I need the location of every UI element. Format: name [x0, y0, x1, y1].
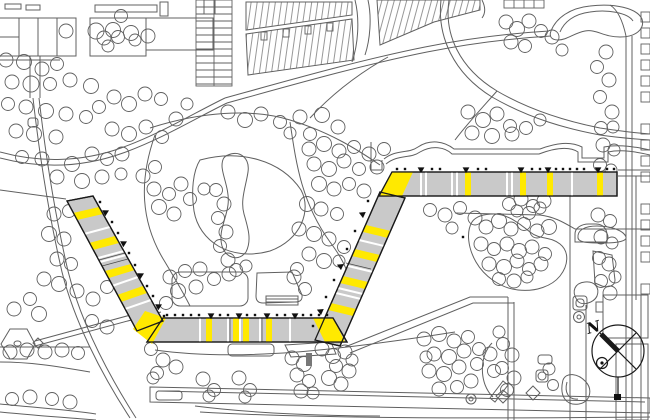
- tree-symbol: [488, 243, 501, 256]
- tree-symbol: [193, 262, 207, 276]
- tree-symbol: [5, 75, 19, 89]
- entrance-marker: [485, 168, 487, 170]
- tree-symbol: [424, 204, 437, 217]
- tree-symbol: [189, 280, 203, 294]
- tree-symbol: [602, 73, 616, 87]
- tree-symbol: [303, 375, 316, 388]
- utility-box: [306, 353, 312, 366]
- tree-symbol: [70, 284, 84, 298]
- tree-symbol: [327, 182, 341, 196]
- entrance-marker: [336, 262, 344, 271]
- tree-symbol: [7, 302, 21, 316]
- building-highlight: [206, 318, 212, 342]
- tree-symbol: [184, 193, 197, 206]
- tree-symbol: [422, 364, 436, 378]
- tree-symbol: [124, 26, 139, 41]
- tree-symbol: [591, 61, 604, 74]
- road: [365, 0, 370, 55]
- tree-symbol: [80, 111, 93, 124]
- entrance-marker: [569, 168, 571, 170]
- tree-symbol: [139, 120, 153, 134]
- entrance-marker: [163, 315, 165, 317]
- entrance-marker: [326, 314, 328, 316]
- neighbor-complex-detail: [26, 5, 40, 10]
- tree-symbol: [605, 105, 619, 119]
- tree-symbol: [464, 374, 478, 388]
- tree-symbol: [451, 381, 464, 394]
- tree-symbol: [417, 332, 431, 346]
- road: [386, 148, 650, 164]
- tree-symbol: [291, 263, 304, 276]
- small-circle: [574, 312, 585, 323]
- tree-symbol: [427, 347, 441, 361]
- tree-symbol: [314, 202, 328, 216]
- tree-symbol: [163, 270, 177, 284]
- north-arrow-detail: [614, 394, 621, 400]
- tree-symbol: [348, 141, 361, 154]
- entrance-marker: [583, 168, 585, 170]
- tree-symbol: [174, 177, 188, 191]
- tree-symbol: [57, 232, 71, 246]
- tree-symbol: [155, 93, 168, 106]
- entrance-marker: [431, 168, 433, 170]
- tree-symbol: [284, 127, 296, 139]
- tree-symbol: [52, 277, 67, 292]
- tree-symbol: [160, 297, 173, 310]
- small-circle: [577, 315, 581, 319]
- entrance-marker: [166, 314, 168, 316]
- tree-symbol: [106, 23, 121, 38]
- building-highlight: [243, 318, 249, 342]
- entrance-marker: [531, 168, 533, 170]
- tree-symbol: [232, 371, 246, 385]
- tree-symbol: [603, 286, 617, 300]
- tree-symbol: [179, 265, 192, 278]
- building-highlight: [233, 318, 239, 342]
- tree-symbol: [488, 365, 501, 378]
- entrance-marker: [128, 252, 130, 254]
- tree-symbol: [437, 367, 452, 382]
- tree-symbol: [156, 353, 170, 367]
- tree-symbol: [322, 232, 336, 246]
- entrance-marker: [310, 314, 312, 316]
- tree-symbol: [196, 372, 210, 386]
- entrance-marker: [539, 168, 541, 170]
- tree-symbol: [145, 343, 158, 356]
- tree-symbol: [238, 113, 253, 128]
- entrance-marker: [555, 168, 557, 170]
- tree-symbol: [59, 107, 73, 121]
- tree-symbol: [47, 207, 61, 221]
- tree-symbol: [93, 101, 106, 114]
- tree-symbol: [23, 390, 37, 404]
- entrance-marker: [325, 296, 327, 298]
- garden-plot: [574, 282, 598, 304]
- entrance-marker: [367, 200, 369, 202]
- tree-symbol: [331, 120, 345, 134]
- parking-bay: [641, 236, 650, 246]
- tree-symbol: [304, 128, 317, 141]
- tree-symbol: [95, 170, 109, 184]
- tree-symbol: [485, 129, 500, 144]
- tree-symbol: [2, 98, 15, 111]
- tree-symbol: [129, 34, 141, 46]
- tree-symbol: [32, 307, 47, 322]
- entrance-marker: [354, 230, 356, 232]
- tree-symbol: [302, 247, 316, 261]
- tree-symbol: [471, 358, 484, 371]
- tree-symbol: [136, 169, 150, 183]
- tree-symbol: [49, 130, 63, 144]
- tree-symbol: [338, 241, 351, 254]
- tree-symbol: [163, 188, 176, 201]
- road: [455, 213, 650, 229]
- entrance-marker: [198, 314, 200, 316]
- tree-symbol: [548, 380, 559, 391]
- building-highlight: [597, 172, 603, 196]
- tree-symbol: [511, 205, 523, 217]
- entrance-marker: [227, 314, 229, 316]
- tree-symbol: [503, 198, 516, 211]
- tree-symbol: [476, 113, 491, 128]
- entrance-marker: [439, 168, 441, 170]
- tree-symbol: [212, 212, 225, 225]
- tree-symbol: [519, 40, 532, 53]
- tree-symbol: [63, 73, 77, 87]
- road: [550, 5, 642, 40]
- tree-symbol: [210, 184, 223, 197]
- garden-plot: [266, 296, 298, 305]
- tree-symbol: [499, 15, 513, 29]
- tree-symbol: [138, 87, 152, 101]
- tree-symbol: [594, 91, 607, 104]
- tree-symbol: [312, 177, 327, 192]
- small-circle: [466, 394, 476, 404]
- entrance-marker: [606, 168, 608, 170]
- parking-bay: [641, 92, 650, 102]
- tree-symbol: [19, 100, 33, 114]
- tree-symbol: [169, 360, 183, 374]
- tree-symbol: [217, 197, 231, 211]
- entrance-marker: [462, 236, 464, 238]
- tree-symbol: [23, 76, 39, 92]
- entrance-marker: [562, 168, 564, 170]
- tree-symbol: [115, 10, 128, 23]
- road: [455, 91, 497, 140]
- tree-symbol: [556, 44, 568, 56]
- small-circle: [538, 372, 546, 380]
- road: [0, 362, 90, 372]
- tree-symbol: [51, 58, 64, 71]
- tree-symbol: [607, 121, 619, 133]
- tree-symbol: [446, 222, 458, 234]
- tree-symbol: [198, 183, 210, 195]
- tree-symbol: [493, 326, 505, 338]
- plot-rounded: [156, 391, 182, 400]
- entrance-marker: [152, 295, 154, 297]
- parking-bay: [641, 204, 650, 214]
- parking-bay: [641, 28, 650, 38]
- tree-symbol: [59, 24, 73, 38]
- building-highlight: [547, 172, 553, 196]
- tree-symbol: [307, 227, 322, 242]
- entrance-marker: [333, 279, 335, 281]
- entrance-marker: [246, 314, 248, 316]
- tree-symbol: [208, 273, 221, 286]
- tree-symbol: [542, 220, 557, 235]
- parking-bay: [641, 124, 650, 134]
- tree-symbol: [317, 137, 332, 152]
- tree-symbol: [521, 271, 533, 283]
- parking-bay: [641, 60, 650, 70]
- tree-symbol: [181, 98, 193, 110]
- tree-symbol: [545, 30, 559, 44]
- entrance-marker: [477, 168, 479, 170]
- tree-symbol: [523, 263, 536, 276]
- tree-symbol: [504, 35, 518, 49]
- tree-symbol: [169, 112, 183, 126]
- entrance-marker: [254, 314, 256, 316]
- tree-symbol: [141, 29, 155, 43]
- tree-symbol: [44, 78, 57, 91]
- tree-symbol: [105, 122, 119, 136]
- entrance-marker: [346, 248, 348, 250]
- tree-symbol: [293, 110, 307, 124]
- tree-symbol: [507, 274, 521, 288]
- entrance-marker: [396, 168, 398, 170]
- parking-bay: [641, 76, 650, 86]
- tree-symbol: [512, 244, 527, 259]
- tree-symbol: [602, 257, 616, 271]
- tree-symbol: [473, 343, 486, 356]
- tree-symbol: [156, 131, 169, 144]
- tree-symbol: [50, 170, 64, 184]
- tree-symbol: [452, 360, 466, 374]
- tree-symbol: [604, 215, 617, 228]
- tree-symbol: [496, 362, 509, 375]
- tree-symbol: [50, 252, 64, 266]
- tree-symbol: [122, 127, 137, 142]
- tree-symbol: [6, 393, 19, 406]
- park-path: [371, 142, 382, 170]
- tree-symbol: [84, 79, 99, 94]
- neighbor-complex-detail: [95, 5, 157, 12]
- tree-symbol: [27, 127, 42, 142]
- tree-symbol: [505, 348, 519, 362]
- road: [610, 5, 626, 36]
- tree-symbol: [294, 384, 308, 398]
- building-highlight: [266, 318, 272, 342]
- entrance-marker: [576, 168, 578, 170]
- north-arrow-detail: [600, 361, 603, 364]
- tree-symbol: [357, 184, 371, 198]
- building-highlight: [520, 172, 526, 196]
- tree-symbol: [299, 283, 312, 296]
- tree-symbol: [525, 240, 539, 254]
- road: [310, 57, 388, 118]
- entrance-marker: [284, 314, 286, 316]
- tree-symbol: [465, 126, 479, 140]
- road: [482, 0, 485, 18]
- entrance-marker: [134, 264, 136, 266]
- tree-symbol: [167, 207, 181, 221]
- road: [195, 406, 380, 416]
- tree-symbol: [72, 347, 85, 360]
- tree-symbol: [152, 200, 167, 215]
- building-highlight: [465, 172, 471, 196]
- tree-symbol: [527, 200, 540, 213]
- north-arrow-bar: [601, 334, 618, 351]
- tree-symbol: [149, 161, 162, 174]
- tree-symbol: [454, 202, 467, 215]
- tree-symbol: [432, 382, 446, 396]
- park-path: [150, 113, 380, 165]
- entrance-marker: [358, 210, 366, 219]
- tree-symbol: [37, 272, 51, 286]
- tree-symbol: [482, 257, 496, 271]
- tree-symbol: [214, 240, 227, 253]
- housing-row: [377, 0, 480, 45]
- tree-symbol: [147, 182, 161, 196]
- tree-symbol: [9, 124, 23, 138]
- tree-symbol: [171, 284, 186, 299]
- tree-symbol: [290, 368, 304, 382]
- entrance-marker: [99, 201, 101, 203]
- tree-symbol: [317, 254, 332, 269]
- diamond-plot: [526, 386, 540, 400]
- tree-symbol: [591, 208, 605, 222]
- tree-symbol: [331, 208, 344, 221]
- parking-bay: [641, 252, 650, 262]
- entrance-marker: [404, 168, 406, 170]
- tree-symbol: [462, 331, 475, 344]
- tree-symbol: [222, 267, 236, 281]
- tree-symbol: [85, 147, 99, 161]
- tree-symbol: [353, 163, 366, 176]
- tree-symbol: [505, 127, 519, 141]
- tree-symbol: [107, 90, 121, 104]
- tree-symbol: [334, 377, 348, 391]
- tree-symbol: [46, 393, 59, 406]
- tree-symbol: [302, 142, 316, 156]
- site-plan: N: [0, 0, 650, 420]
- entrance-marker: [174, 314, 176, 316]
- tree-symbol: [86, 292, 100, 306]
- tree-symbol: [102, 40, 114, 52]
- tree-symbol: [75, 174, 90, 189]
- entrance-marker: [117, 232, 119, 234]
- tree-symbol: [307, 387, 319, 399]
- entrance-marker: [146, 285, 148, 287]
- entrance-marker: [111, 221, 113, 223]
- park-path: [144, 135, 190, 306]
- parking-bay: [641, 172, 650, 182]
- garden-plot: [256, 272, 302, 303]
- entrance-marker: [276, 314, 278, 316]
- tree-symbol: [63, 395, 77, 409]
- tree-symbol: [457, 344, 471, 358]
- entrance-marker: [613, 168, 615, 170]
- plot-rounded: [14, 341, 21, 346]
- entrance-marker: [318, 314, 320, 316]
- road: [0, 103, 227, 165]
- parking-bay: [641, 44, 650, 54]
- tree-symbol: [523, 207, 536, 220]
- tree-symbol: [510, 254, 524, 268]
- park-path: [290, 122, 350, 284]
- garden-plot: [636, 176, 650, 300]
- tree-symbol: [35, 62, 49, 76]
- parking-bay: [641, 156, 650, 166]
- tree-symbol: [599, 45, 613, 59]
- tree-symbol: [322, 162, 337, 177]
- parking-bay: [641, 284, 650, 294]
- tree-symbol: [17, 55, 32, 70]
- entrance-marker: [302, 314, 304, 316]
- tree-symbol: [240, 260, 252, 272]
- tree-symbol: [112, 31, 125, 44]
- tree-symbol: [307, 157, 321, 171]
- entrance-marker: [312, 325, 314, 327]
- tree-symbol: [490, 107, 504, 121]
- neighbor-complex-detail: [160, 2, 168, 16]
- tree-symbol: [593, 252, 606, 265]
- building-wing: [379, 172, 617, 196]
- road: [0, 190, 66, 199]
- tree-symbol: [115, 147, 129, 161]
- entrance-marker: [190, 314, 192, 316]
- tree-symbol: [420, 351, 432, 363]
- tree-symbol: [504, 222, 518, 236]
- tree-symbol: [122, 97, 137, 112]
- site-plan-svg: N: [0, 0, 650, 420]
- tree-symbol: [221, 105, 235, 119]
- tree-symbol: [115, 168, 127, 180]
- neighbor-building: [596, 302, 603, 312]
- tree-symbol: [522, 14, 536, 28]
- tree-symbol: [474, 237, 488, 251]
- tree-symbol: [343, 178, 356, 191]
- tree-symbol: [55, 343, 69, 357]
- tree-symbol: [24, 293, 37, 306]
- tree-symbol: [315, 108, 330, 123]
- tree-symbol: [438, 208, 452, 222]
- tree-symbol: [378, 143, 391, 156]
- road: [0, 412, 96, 420]
- entrance-marker: [182, 314, 184, 316]
- tree-symbol: [520, 122, 533, 135]
- entrance-marker: [219, 314, 221, 316]
- neighbor-complex-detail: [5, 4, 21, 9]
- tree-symbol: [461, 105, 475, 119]
